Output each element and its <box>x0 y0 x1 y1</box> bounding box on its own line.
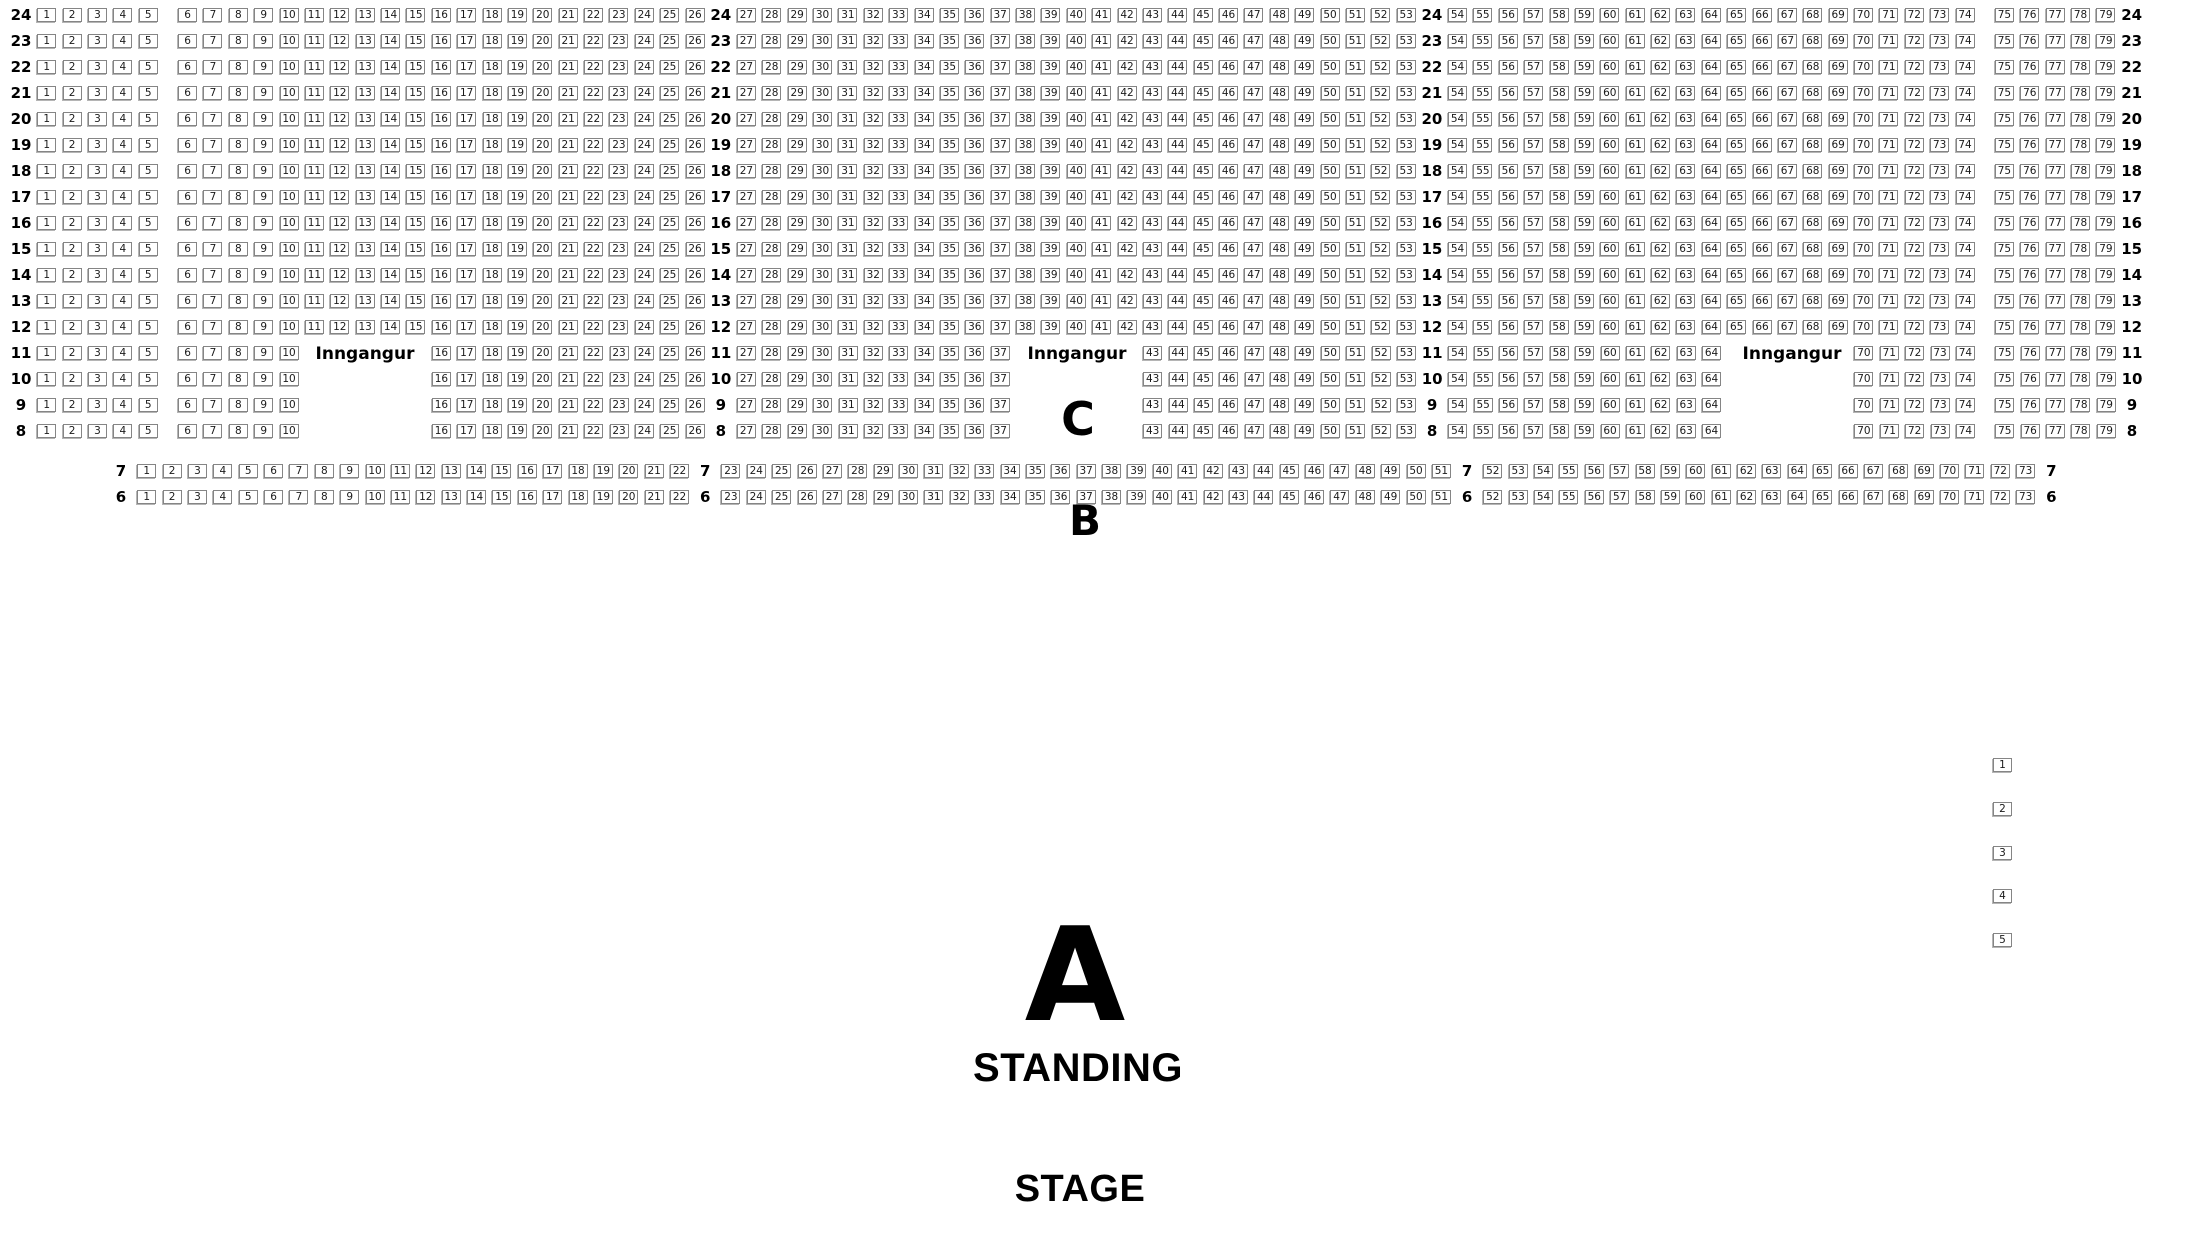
seat[interactable]: 56 <box>1499 346 1518 360</box>
seat[interactable]: 40 <box>1153 490 1172 504</box>
seat[interactable]: 46 <box>1219 268 1238 282</box>
seat[interactable]: 46 <box>1219 346 1238 360</box>
seat[interactable]: 28 <box>762 112 781 126</box>
seat[interactable]: 24 <box>747 490 766 504</box>
seat[interactable]: 20 <box>533 164 552 178</box>
seat[interactable]: 3 <box>88 86 107 100</box>
seat[interactable]: 54 <box>1448 8 1467 22</box>
seat[interactable]: 1 <box>37 268 56 282</box>
seat[interactable]: 66 <box>1753 268 1772 282</box>
seat[interactable]: 19 <box>508 112 527 126</box>
seat[interactable]: 41 <box>1092 138 1111 152</box>
seat[interactable]: 7 <box>203 320 222 334</box>
seat[interactable]: 31 <box>838 34 857 48</box>
seat[interactable]: 74 <box>1956 398 1975 412</box>
seat[interactable]: 31 <box>924 464 943 478</box>
seat[interactable]: 8 <box>229 372 248 386</box>
seat[interactable]: 33 <box>889 164 908 178</box>
seat[interactable]: 48 <box>1270 320 1289 334</box>
seat[interactable]: 77 <box>2046 60 2065 74</box>
seat[interactable]: 40 <box>1067 8 1086 22</box>
seat[interactable]: 9 <box>340 490 359 504</box>
seat[interactable]: 37 <box>991 34 1010 48</box>
seat[interactable]: 43 <box>1143 112 1162 126</box>
seat[interactable]: 25 <box>660 60 679 74</box>
seat[interactable]: 56 <box>1499 242 1518 256</box>
seat[interactable]: 5 <box>139 216 158 230</box>
seat[interactable]: 19 <box>594 464 613 478</box>
seat[interactable]: 61 <box>1626 372 1645 386</box>
seat[interactable]: 4 <box>113 112 132 126</box>
seat[interactable]: 63 <box>1676 138 1695 152</box>
seat[interactable]: 78 <box>2071 60 2090 74</box>
seat[interactable]: 46 <box>1219 34 1238 48</box>
seat[interactable]: 33 <box>889 242 908 256</box>
seat[interactable]: 4 <box>113 60 132 74</box>
seat[interactable]: 25 <box>660 190 679 204</box>
seat[interactable]: 11 <box>391 464 410 478</box>
seat[interactable]: 26 <box>686 164 705 178</box>
seat[interactable]: 59 <box>1575 294 1594 308</box>
seat[interactable]: 26 <box>686 346 705 360</box>
seat[interactable]: 38 <box>1102 490 1121 504</box>
seat[interactable]: 10 <box>280 216 299 230</box>
seat[interactable]: 63 <box>1676 242 1695 256</box>
seat[interactable]: 6 <box>264 464 283 478</box>
seat[interactable]: 9 <box>254 216 273 230</box>
seat[interactable]: 62 <box>1651 8 1670 22</box>
seat[interactable]: 75 <box>1995 372 2014 386</box>
seat[interactable]: 30 <box>813 268 832 282</box>
seat[interactable]: 39 <box>1041 320 1060 334</box>
seat[interactable]: 45 <box>1194 320 1213 334</box>
seat[interactable]: 23 <box>721 490 740 504</box>
seat[interactable]: 61 <box>1626 112 1645 126</box>
seat[interactable]: 79 <box>2096 86 2115 100</box>
seat[interactable]: 28 <box>762 346 781 360</box>
seat[interactable]: 53 <box>1397 60 1416 74</box>
seat[interactable]: 12 <box>330 294 349 308</box>
seat[interactable]: 40 <box>1067 268 1086 282</box>
seat[interactable]: 42 <box>1118 8 1137 22</box>
seat[interactable]: 66 <box>1839 490 1858 504</box>
seat[interactable]: 4 <box>113 268 132 282</box>
seat[interactable]: 37 <box>991 242 1010 256</box>
seat[interactable]: 45 <box>1194 112 1213 126</box>
seat[interactable]: 17 <box>457 34 476 48</box>
seat[interactable]: 50 <box>1321 8 1340 22</box>
seat[interactable]: 2 <box>63 8 82 22</box>
seat[interactable]: 72 <box>1905 372 1924 386</box>
seat[interactable]: 35 <box>1026 490 1045 504</box>
seat[interactable]: 74 <box>1956 424 1975 438</box>
seat[interactable]: 74 <box>1956 372 1975 386</box>
seat[interactable]: 12 <box>330 8 349 22</box>
seat[interactable]: 72 <box>1905 164 1924 178</box>
seat[interactable]: 31 <box>838 164 857 178</box>
seat[interactable]: 66 <box>1753 164 1772 178</box>
seat[interactable]: 2 <box>63 86 82 100</box>
seat[interactable]: 8 <box>229 346 248 360</box>
seat[interactable]: 3 <box>88 164 107 178</box>
seat[interactable]: 26 <box>686 242 705 256</box>
seat[interactable]: 21 <box>645 464 664 478</box>
seat[interactable]: 8 <box>315 490 334 504</box>
seat[interactable]: 10 <box>280 164 299 178</box>
seat[interactable]: 41 <box>1092 60 1111 74</box>
seat[interactable]: 15 <box>492 464 511 478</box>
seat[interactable]: 25 <box>660 294 679 308</box>
seat[interactable]: 59 <box>1575 190 1594 204</box>
seat[interactable]: 77 <box>2046 398 2065 412</box>
seat[interactable]: 66 <box>1753 34 1772 48</box>
seat[interactable]: 49 <box>1295 424 1314 438</box>
seat[interactable]: 40 <box>1067 60 1086 74</box>
seat[interactable]: 53 <box>1397 294 1416 308</box>
seat[interactable]: 56 <box>1499 268 1518 282</box>
seat[interactable]: 42 <box>1118 294 1137 308</box>
seat[interactable]: 72 <box>1905 86 1924 100</box>
seat[interactable]: 52 <box>1372 372 1391 386</box>
seat[interactable]: 1 <box>37 138 56 152</box>
seat[interactable]: 40 <box>1153 464 1172 478</box>
seat[interactable]: 15 <box>406 216 425 230</box>
seat[interactable]: 30 <box>813 216 832 230</box>
seat[interactable]: 70 <box>1854 34 1873 48</box>
seat[interactable]: 57 <box>1524 164 1543 178</box>
seat[interactable]: 51 <box>1346 216 1365 230</box>
seat[interactable]: 72 <box>1905 34 1924 48</box>
seat[interactable]: 60 <box>1600 242 1619 256</box>
seat[interactable]: 46 <box>1219 112 1238 126</box>
seat[interactable]: 17 <box>457 294 476 308</box>
seat[interactable]: 74 <box>1956 112 1975 126</box>
seat[interactable]: 76 <box>2020 216 2039 230</box>
seat[interactable]: 46 <box>1305 490 1324 504</box>
seat[interactable]: 18 <box>483 320 502 334</box>
seat[interactable]: 33 <box>889 294 908 308</box>
seat[interactable]: 70 <box>1940 464 1959 478</box>
seat[interactable]: 47 <box>1245 372 1264 386</box>
seat[interactable]: 69 <box>1829 8 1848 22</box>
seat[interactable]: 18 <box>483 242 502 256</box>
seat[interactable]: 63 <box>1676 34 1695 48</box>
seat[interactable]: 64 <box>1702 138 1721 152</box>
seat[interactable]: 66 <box>1753 138 1772 152</box>
seat[interactable]: 25 <box>660 138 679 152</box>
seat[interactable]: 28 <box>762 320 781 334</box>
seat[interactable]: 35 <box>940 8 959 22</box>
seat[interactable]: 21 <box>559 346 578 360</box>
seat[interactable]: 37 <box>991 424 1010 438</box>
seat[interactable]: 33 <box>889 372 908 386</box>
seat[interactable]: 60 <box>1600 294 1619 308</box>
seat[interactable]: 78 <box>2071 190 2090 204</box>
seat[interactable]: 63 <box>1762 490 1781 504</box>
seat[interactable]: 59 <box>1575 268 1594 282</box>
seat[interactable]: 46 <box>1219 372 1238 386</box>
seat[interactable]: 31 <box>838 190 857 204</box>
seat[interactable]: 48 <box>1356 464 1375 478</box>
seat[interactable]: 66 <box>1839 464 1858 478</box>
seat[interactable]: 29 <box>874 464 893 478</box>
seat[interactable]: 67 <box>1778 320 1797 334</box>
seat[interactable]: 33 <box>889 398 908 412</box>
seat[interactable]: 45 <box>1194 268 1213 282</box>
seat[interactable]: 50 <box>1321 60 1340 74</box>
seat[interactable]: 63 <box>1676 216 1695 230</box>
seat[interactable]: 7 <box>203 190 222 204</box>
seat[interactable]: 51 <box>1346 268 1365 282</box>
seat[interactable]: 61 <box>1626 60 1645 74</box>
seat[interactable]: 66 <box>1753 294 1772 308</box>
seat[interactable]: 47 <box>1330 464 1349 478</box>
seat[interactable]: 35 <box>940 320 959 334</box>
seat[interactable]: 59 <box>1575 346 1594 360</box>
seat[interactable]: 36 <box>965 60 984 74</box>
seat[interactable]: 35 <box>940 138 959 152</box>
seat[interactable]: 37 <box>991 8 1010 22</box>
seat[interactable]: 15 <box>406 112 425 126</box>
seat[interactable]: 8 <box>229 8 248 22</box>
seat[interactable]: 78 <box>2071 86 2090 100</box>
seat[interactable]: 9 <box>254 8 273 22</box>
seat[interactable]: 67 <box>1778 294 1797 308</box>
seat[interactable]: 29 <box>788 372 807 386</box>
seat[interactable]: 73 <box>2016 490 2035 504</box>
seat[interactable]: 43 <box>1143 86 1162 100</box>
seat[interactable]: 63 <box>1677 424 1696 438</box>
seat[interactable]: 65 <box>1727 320 1746 334</box>
seat[interactable]: 55 <box>1473 138 1492 152</box>
seat[interactable]: 42 <box>1118 320 1137 334</box>
seat[interactable]: 48 <box>1270 424 1289 438</box>
seat[interactable]: 64 <box>1788 464 1807 478</box>
seat[interactable]: 42 <box>1118 60 1137 74</box>
seat[interactable]: 21 <box>559 112 578 126</box>
seat[interactable]: 27 <box>737 372 756 386</box>
seat[interactable]: 34 <box>915 190 934 204</box>
seat[interactable]: 4 <box>113 294 132 308</box>
seat[interactable]: 9 <box>254 34 273 48</box>
seat[interactable]: 13 <box>356 242 375 256</box>
seat[interactable]: 3 <box>88 112 107 126</box>
seat[interactable]: 45 <box>1194 424 1213 438</box>
seat[interactable]: 37 <box>991 86 1010 100</box>
seat[interactable]: 79 <box>2096 138 2115 152</box>
seat[interactable]: 63 <box>1677 398 1696 412</box>
seat[interactable]: 42 <box>1204 464 1223 478</box>
seat[interactable]: 61 <box>1626 398 1645 412</box>
seat[interactable]: 49 <box>1295 398 1314 412</box>
seat[interactable]: 2 <box>63 34 82 48</box>
seat[interactable]: 60 <box>1601 346 1620 360</box>
seat[interactable]: 59 <box>1661 490 1680 504</box>
seat[interactable]: 78 <box>2071 398 2090 412</box>
seat[interactable]: 32 <box>864 164 883 178</box>
seat[interactable]: 58 <box>1636 464 1655 478</box>
seat[interactable]: 25 <box>660 86 679 100</box>
seat[interactable]: 16 <box>432 346 451 360</box>
seat[interactable]: 20 <box>533 268 552 282</box>
seat[interactable]: 68 <box>1889 490 1908 504</box>
seat[interactable]: 4 <box>213 490 232 504</box>
seat[interactable]: 69 <box>1829 34 1848 48</box>
seat[interactable]: 29 <box>788 398 807 412</box>
seat[interactable]: 17 <box>457 216 476 230</box>
seat[interactable]: 20 <box>533 112 552 126</box>
seat[interactable]: 44 <box>1168 138 1187 152</box>
seat[interactable]: 19 <box>508 34 527 48</box>
seat[interactable]: 32 <box>864 268 883 282</box>
seat[interactable]: 79 <box>2097 424 2116 438</box>
seat[interactable]: 4 <box>113 216 132 230</box>
seat[interactable]: 14 <box>381 216 400 230</box>
seat[interactable]: 54 <box>1448 60 1467 74</box>
seat[interactable]: 12 <box>330 190 349 204</box>
seat[interactable]: 61 <box>1626 346 1645 360</box>
seat[interactable]: 49 <box>1295 8 1314 22</box>
seat[interactable]: 4 <box>213 464 232 478</box>
seat[interactable]: 28 <box>762 424 781 438</box>
seat[interactable]: 17 <box>457 268 476 282</box>
seat[interactable]: 44 <box>1169 346 1188 360</box>
seat[interactable]: 52 <box>1372 346 1391 360</box>
seat[interactable]: 11 <box>391 490 410 504</box>
seat[interactable]: 56 <box>1499 398 1518 412</box>
seat[interactable]: 57 <box>1610 490 1629 504</box>
seat[interactable]: 23 <box>609 8 628 22</box>
seat[interactable]: 49 <box>1295 320 1314 334</box>
seat[interactable]: 42 <box>1204 490 1223 504</box>
seat[interactable]: 61 <box>1626 86 1645 100</box>
seat[interactable]: 60 <box>1686 464 1705 478</box>
seat[interactable]: 44 <box>1168 60 1187 74</box>
seat[interactable]: 10 <box>280 242 299 256</box>
seat[interactable]: 66 <box>1753 60 1772 74</box>
seat[interactable]: 10 <box>280 372 299 386</box>
seat[interactable]: 39 <box>1041 34 1060 48</box>
seat[interactable]: 58 <box>1550 112 1569 126</box>
seat[interactable]: 24 <box>635 294 654 308</box>
seat[interactable]: 29 <box>788 34 807 48</box>
seat[interactable]: 26 <box>686 320 705 334</box>
seat[interactable]: 41 <box>1092 268 1111 282</box>
seat[interactable]: 69 <box>1915 490 1934 504</box>
seat[interactable]: 32 <box>864 320 883 334</box>
seat[interactable]: 10 <box>280 86 299 100</box>
seat[interactable]: 28 <box>762 242 781 256</box>
seat[interactable]: 16 <box>432 86 451 100</box>
seat[interactable]: 2 <box>63 398 82 412</box>
seat[interactable]: 54 <box>1448 164 1467 178</box>
seat[interactable]: 51 <box>1346 34 1365 48</box>
seat[interactable]: 34 <box>915 398 934 412</box>
seat[interactable]: 15 <box>406 86 425 100</box>
seat[interactable]: 28 <box>762 138 781 152</box>
seat[interactable]: 57 <box>1524 112 1543 126</box>
seat[interactable]: 6 <box>178 60 197 74</box>
seat[interactable]: 28 <box>762 294 781 308</box>
seat[interactable]: 78 <box>2071 112 2090 126</box>
seat[interactable]: 62 <box>1651 372 1670 386</box>
seat[interactable]: 47 <box>1244 164 1263 178</box>
seat[interactable]: 27 <box>737 320 756 334</box>
seat[interactable]: 76 <box>2020 164 2039 178</box>
seat[interactable]: 22 <box>584 34 603 48</box>
seat[interactable]: 78 <box>2071 8 2090 22</box>
seat[interactable]: 20 <box>533 60 552 74</box>
seat[interactable]: 29 <box>788 216 807 230</box>
seat[interactable]: 57 <box>1524 372 1543 386</box>
seat[interactable]: 7 <box>203 60 222 74</box>
seat[interactable]: 45 <box>1194 60 1213 74</box>
seat[interactable]: 23 <box>609 268 628 282</box>
seat[interactable]: 70 <box>1854 190 1873 204</box>
seat[interactable]: 46 <box>1219 8 1238 22</box>
seat[interactable]: 63 <box>1677 372 1696 386</box>
seat[interactable]: 30 <box>813 164 832 178</box>
seat[interactable]: 51 <box>1346 138 1365 152</box>
seat[interactable]: 72 <box>1991 464 2010 478</box>
seat[interactable]: 23 <box>610 372 629 386</box>
seat[interactable]: 30 <box>813 8 832 22</box>
seat[interactable]: 6 <box>178 164 197 178</box>
seat[interactable]: 57 <box>1524 320 1543 334</box>
seat[interactable]: 9 <box>340 464 359 478</box>
seat[interactable]: 79 <box>2096 112 2115 126</box>
seat[interactable]: 8 <box>229 398 248 412</box>
seat[interactable]: 63 <box>1677 346 1696 360</box>
seat[interactable]: 28 <box>762 216 781 230</box>
seat[interactable]: 56 <box>1499 138 1518 152</box>
seat[interactable]: 68 <box>1803 242 1822 256</box>
seat[interactable]: 41 <box>1092 320 1111 334</box>
seat[interactable]: 18 <box>483 294 502 308</box>
seat[interactable]: 34 <box>915 164 934 178</box>
seat[interactable]: 61 <box>1626 34 1645 48</box>
seat[interactable]: 56 <box>1499 294 1518 308</box>
seat[interactable]: 23 <box>609 294 628 308</box>
seat[interactable]: 25 <box>660 372 679 386</box>
seat[interactable]: 48 <box>1270 164 1289 178</box>
seat[interactable]: 41 <box>1092 294 1111 308</box>
seat[interactable]: 9 <box>254 164 273 178</box>
seat[interactable]: 73 <box>1930 268 1949 282</box>
seat[interactable]: 1 <box>37 164 56 178</box>
seat[interactable]: 64 <box>1702 398 1721 412</box>
seat[interactable]: 50 <box>1407 464 1426 478</box>
seat[interactable]: 75 <box>1995 424 2014 438</box>
seat[interactable]: 47 <box>1244 190 1263 204</box>
seat[interactable]: 33 <box>889 424 908 438</box>
seat[interactable]: 46 <box>1219 216 1238 230</box>
seat[interactable]: 38 <box>1016 8 1035 22</box>
seat[interactable]: 52 <box>1371 242 1390 256</box>
seat[interactable]: 37 <box>991 138 1010 152</box>
seat[interactable]: 65 <box>1727 164 1746 178</box>
seat[interactable]: 39 <box>1041 216 1060 230</box>
seat[interactable]: 4 <box>113 372 132 386</box>
seat[interactable]: 22 <box>584 398 603 412</box>
seat[interactable]: 51 <box>1346 424 1365 438</box>
seat[interactable]: 76 <box>2020 190 2039 204</box>
seat[interactable]: 29 <box>788 190 807 204</box>
seat[interactable]: 57 <box>1524 346 1543 360</box>
seat[interactable]: 18 <box>483 112 502 126</box>
seat[interactable]: 56 <box>1499 372 1518 386</box>
seat[interactable]: 73 <box>1930 112 1949 126</box>
